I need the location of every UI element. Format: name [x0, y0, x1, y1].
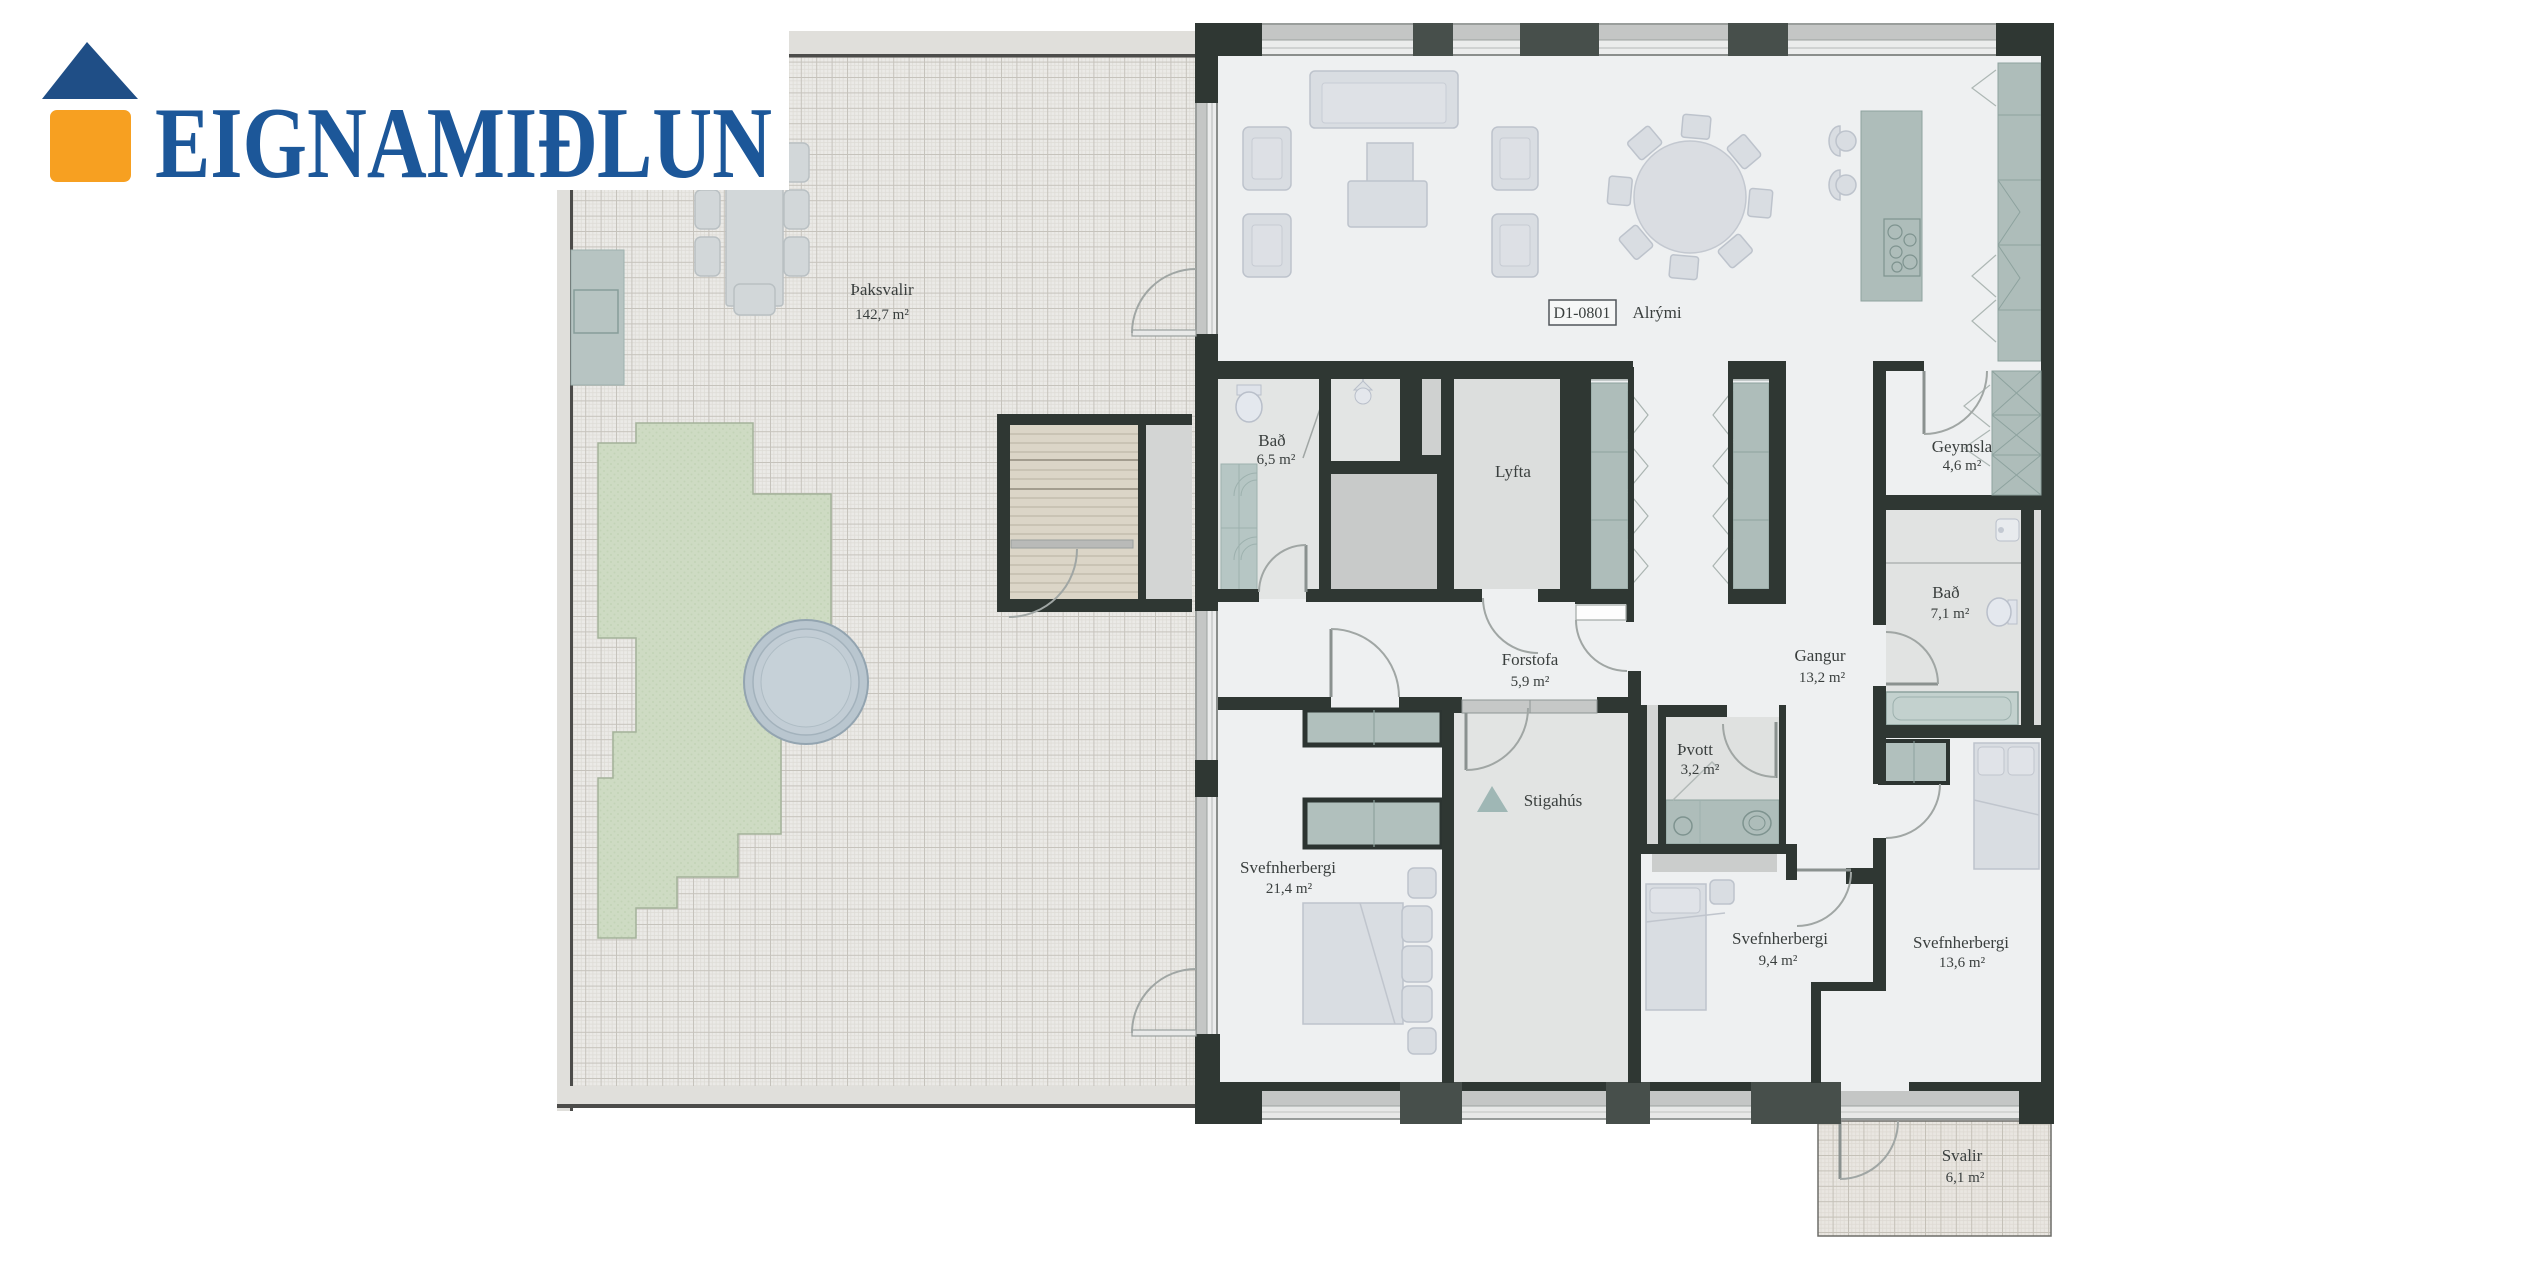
svg-text:4,6 m²: 4,6 m² — [1943, 458, 1982, 474]
svg-text:9,4 m²: 9,4 m² — [1759, 953, 1798, 969]
svg-text:D1-0801: D1-0801 — [1554, 305, 1611, 322]
svg-text:EIGNAMIÐLUN: EIGNAMIÐLUN — [155, 87, 772, 200]
svg-text:13,2 m²: 13,2 m² — [1799, 670, 1846, 686]
svg-text:Alrými: Alrými — [1632, 303, 1681, 322]
svg-text:5,9 m²: 5,9 m² — [1511, 674, 1550, 690]
svg-text:Svefnherbergi: Svefnherbergi — [1732, 929, 1828, 948]
svg-text:13,6 m²: 13,6 m² — [1939, 955, 1986, 971]
svg-text:Gangur: Gangur — [1795, 646, 1846, 665]
svg-text:3,2 m²: 3,2 m² — [1681, 762, 1720, 778]
svg-text:6,1 m²: 6,1 m² — [1946, 1170, 1985, 1186]
svg-text:7,1 m²: 7,1 m² — [1931, 606, 1970, 622]
svg-text:Svefnherbergi: Svefnherbergi — [1240, 858, 1336, 877]
svg-text:Svefnherbergi: Svefnherbergi — [1913, 933, 2009, 952]
svg-text:6,5 m²: 6,5 m² — [1257, 452, 1296, 468]
svg-text:Þvott: Þvott — [1677, 740, 1713, 759]
svg-text:Svalir: Svalir — [1942, 1146, 1983, 1165]
svg-text:Stigahús: Stigahús — [1524, 791, 1583, 810]
svg-text:Bað: Bað — [1258, 431, 1285, 450]
svg-text:Geymsla: Geymsla — [1932, 437, 1993, 456]
svg-text:Bað: Bað — [1932, 583, 1959, 602]
svg-text:142,7 m²: 142,7 m² — [855, 307, 909, 323]
svg-text:21,4 m²: 21,4 m² — [1266, 881, 1313, 897]
svg-text:Þaksvalir: Þaksvalir — [850, 280, 914, 299]
svg-text:Forstofa: Forstofa — [1502, 650, 1559, 669]
svg-text:Lyfta: Lyfta — [1495, 462, 1531, 481]
